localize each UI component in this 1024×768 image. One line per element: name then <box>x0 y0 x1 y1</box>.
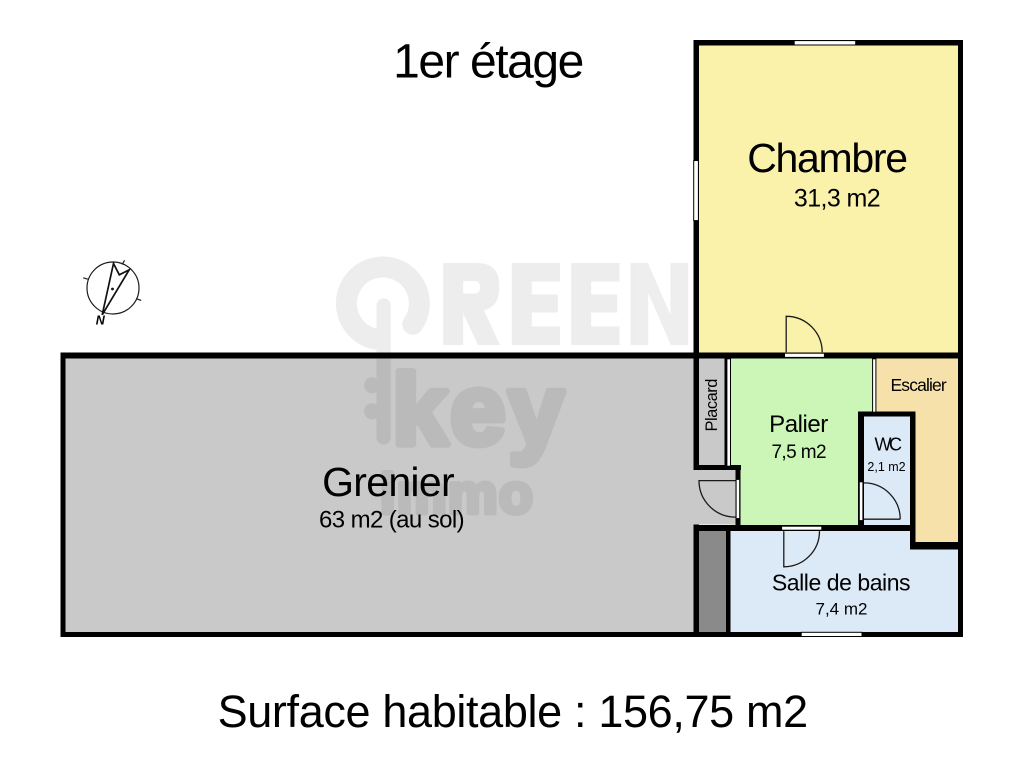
svg-text:N: N <box>96 313 106 327</box>
svg-text:7,4 m2: 7,4 m2 <box>816 599 868 618</box>
svg-text:Surface habitable : 156,75 m2: Surface habitable : 156,75 m2 <box>218 686 808 737</box>
svg-text:Palier: Palier <box>769 411 828 438</box>
svg-text:Chambre: Chambre <box>747 135 907 181</box>
svg-text:key: key <box>392 354 566 466</box>
svg-text:2,1 m2: 2,1 m2 <box>867 460 905 474</box>
svg-text:7,5 m2: 7,5 m2 <box>771 442 826 463</box>
svg-text:1er étage: 1er étage <box>393 36 583 89</box>
svg-text:Escalier: Escalier <box>890 375 946 395</box>
svg-text:Grenier: Grenier <box>322 459 454 505</box>
svg-text:Salle de bains: Salle de bains <box>772 569 910 595</box>
svg-text:WC: WC <box>875 435 902 455</box>
svg-text:63 m2 (au sol): 63 m2 (au sol) <box>319 507 464 534</box>
svg-text:31,3 m2: 31,3 m2 <box>794 184 880 212</box>
svg-text:Placard: Placard <box>703 379 721 432</box>
